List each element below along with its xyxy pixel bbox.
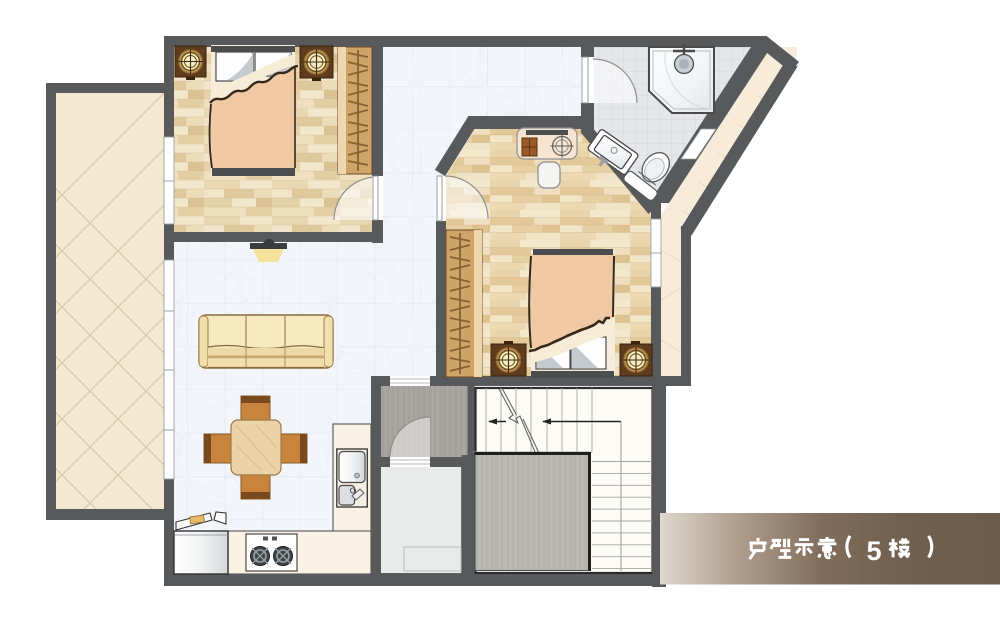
svg-text:5: 5 [866, 536, 881, 566]
